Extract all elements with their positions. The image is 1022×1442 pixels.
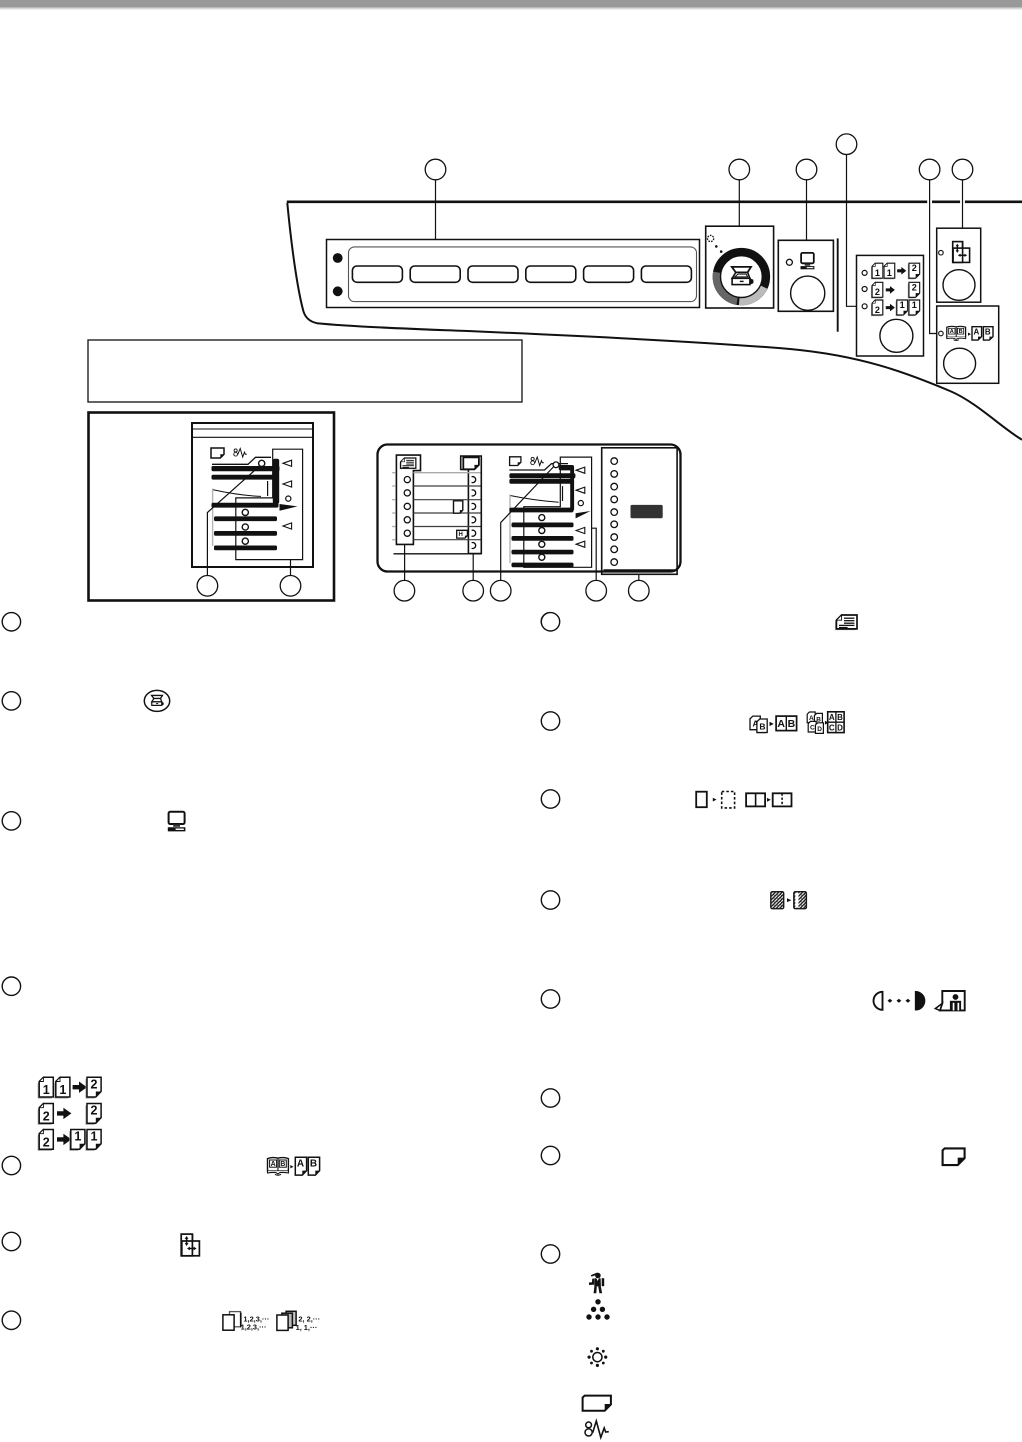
svg-text:1: 1 [74, 1130, 81, 1144]
svg-text:H: H [459, 532, 463, 538]
svg-text:1: 1 [91, 1130, 98, 1144]
svg-text:B: B [837, 713, 843, 722]
svg-text:2: 2 [91, 1104, 98, 1118]
svg-text:1: 1 [875, 268, 880, 278]
svg-text:B: B [759, 722, 765, 732]
svg-text:B: B [985, 327, 991, 336]
svg-text:A: A [297, 1158, 304, 1169]
svg-text:1: 1 [900, 300, 905, 310]
svg-text:B: B [280, 1161, 285, 1168]
svg-text:B: B [788, 718, 796, 730]
svg-text:2: 2 [91, 1077, 98, 1091]
svg-text:B: B [310, 1158, 317, 1169]
svg-text:A: A [974, 327, 980, 336]
svg-text:1: 1 [912, 300, 917, 310]
svg-text:D: D [817, 726, 822, 733]
svg-text:1,2,3,···: 1,2,3,··· [241, 1323, 267, 1332]
svg-text:1: 1 [887, 268, 892, 278]
svg-text:C: C [810, 724, 815, 731]
svg-text:2: 2 [912, 282, 917, 292]
svg-text:A: A [950, 329, 954, 335]
svg-text:2: 2 [43, 1135, 50, 1149]
svg-text:1: 1 [59, 1083, 66, 1097]
svg-text:2: 2 [43, 1109, 50, 1123]
svg-text:C: C [829, 723, 835, 732]
svg-text:B: B [959, 329, 963, 335]
svg-text:2: 2 [912, 263, 917, 273]
svg-text:2: 2 [875, 305, 880, 315]
svg-text:1, 1,···: 1, 1,··· [296, 1323, 318, 1332]
svg-text:A: A [777, 718, 785, 730]
svg-text:D: D [837, 723, 843, 732]
svg-text:2: 2 [875, 287, 880, 297]
svg-text:A: A [271, 1161, 276, 1168]
svg-text:1: 1 [43, 1083, 50, 1097]
svg-text:A: A [829, 713, 835, 722]
